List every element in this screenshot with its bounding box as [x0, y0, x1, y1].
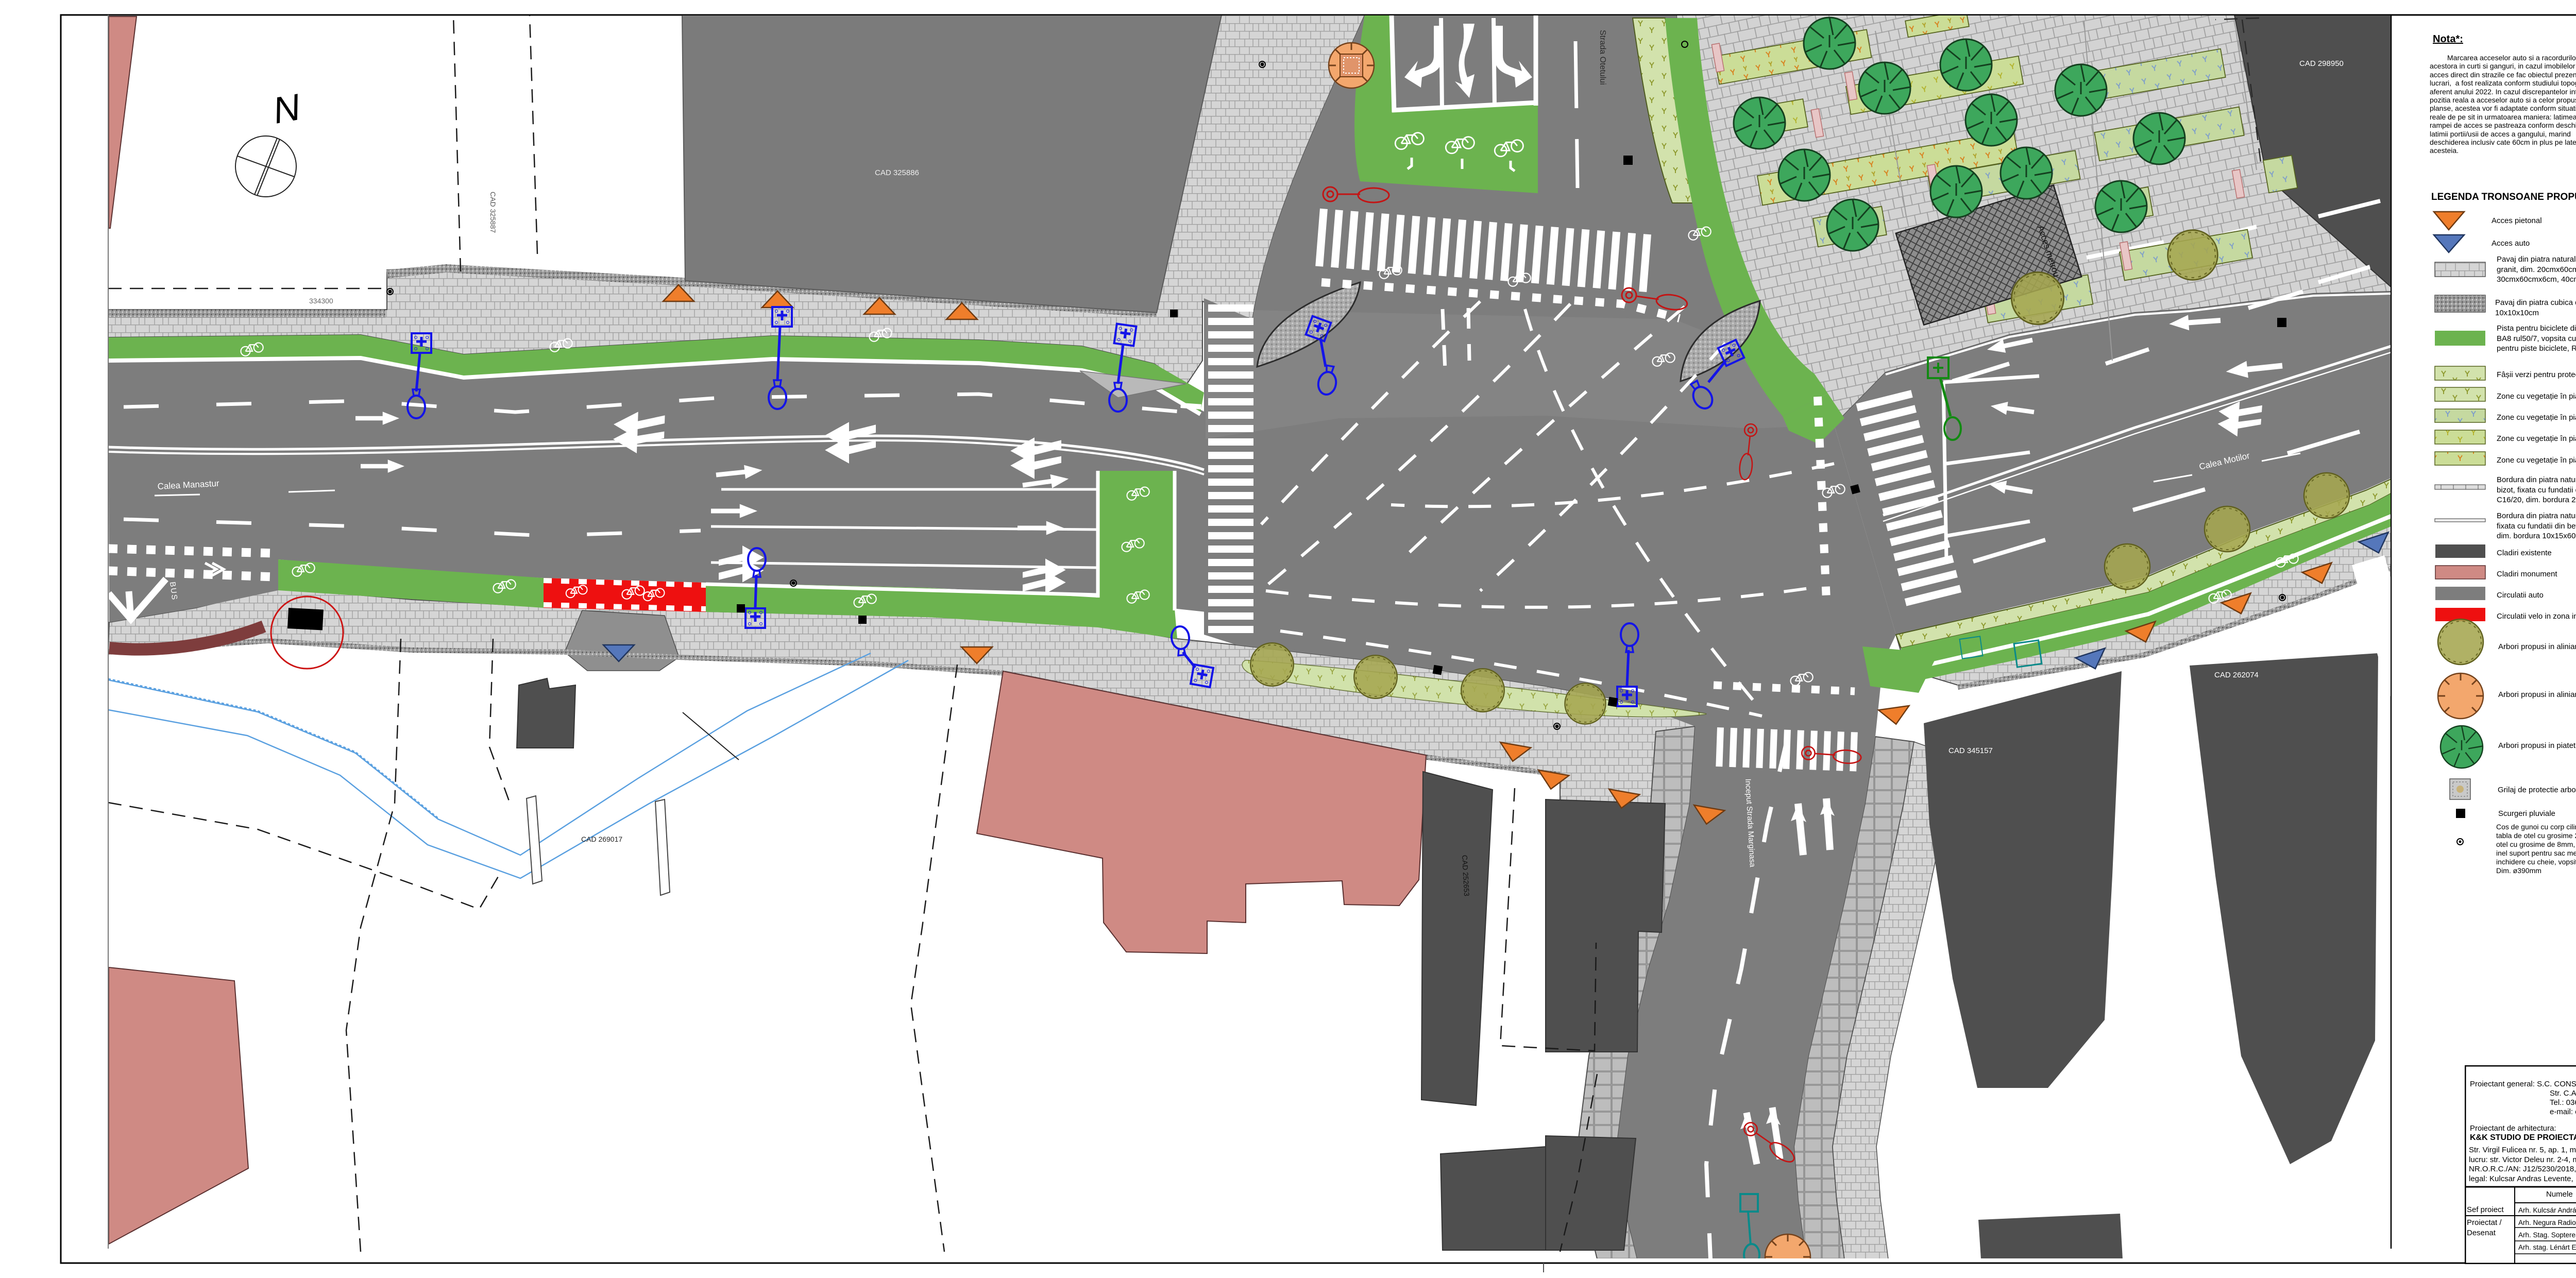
- svg-text:CAD 345157: CAD 345157: [1948, 746, 1993, 755]
- svg-text:CAD 325887: CAD 325887: [489, 192, 497, 233]
- svg-text:Strada Otetului: Strada Otetului: [1598, 30, 1607, 85]
- svg-text:334300: 334300: [309, 297, 333, 305]
- svg-text:CAD 298950: CAD 298950: [2299, 59, 2344, 68]
- svg-text:CAD 269017: CAD 269017: [581, 835, 622, 843]
- svg-text:CAD 262074: CAD 262074: [2214, 671, 2259, 679]
- svg-text:CAD 325886: CAD 325886: [875, 168, 919, 177]
